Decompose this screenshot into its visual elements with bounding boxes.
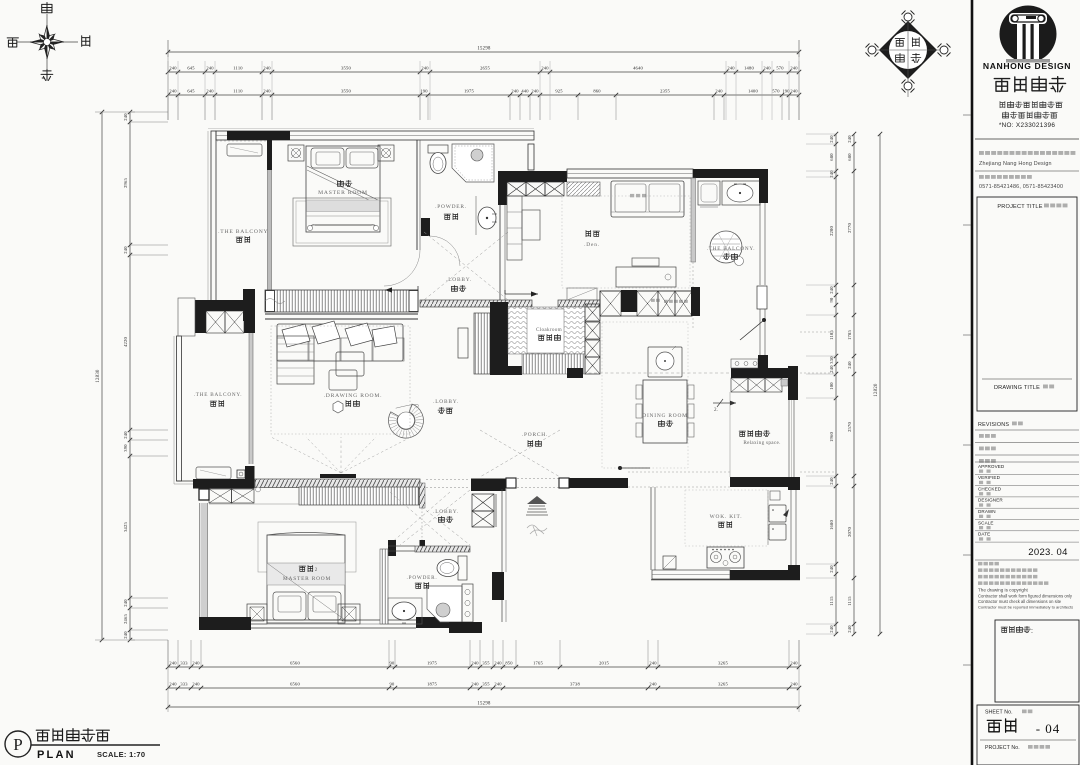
- svg-text:DATE: DATE: [978, 532, 990, 537]
- svg-text:6560: 6560: [290, 661, 300, 666]
- svg-text:240: 240: [263, 66, 271, 71]
- svg-text:3425: 3425: [123, 522, 128, 532]
- svg-text:240: 240: [715, 89, 723, 94]
- svg-text:240: 240: [169, 66, 177, 71]
- svg-text:.THE BALCONY.: .THE BALCONY.: [707, 246, 756, 252]
- svg-text:240: 240: [727, 66, 735, 71]
- svg-text:.THE BALCONY.: .THE BALCONY.: [218, 229, 270, 235]
- svg-text:2070: 2070: [847, 527, 852, 537]
- svg-text:333: 333: [180, 682, 188, 687]
- svg-text:2015: 2015: [599, 661, 609, 666]
- svg-text:240: 240: [471, 661, 479, 666]
- svg-text:12820: 12820: [874, 383, 879, 397]
- svg-text:SHEET No.: SHEET No.: [985, 710, 1013, 716]
- svg-text:240: 240: [829, 477, 834, 485]
- svg-text:WOK. KIT.: WOK. KIT.: [710, 514, 743, 520]
- svg-text:1105: 1105: [829, 330, 834, 340]
- svg-text:The drawing is copyright: The drawing is copyright: [978, 588, 1029, 593]
- svg-text:- 04: - 04: [1036, 721, 1061, 736]
- svg-text:1785: 1785: [847, 330, 852, 340]
- svg-text:15298: 15298: [477, 702, 491, 707]
- svg-text:240: 240: [847, 135, 852, 143]
- svg-text:2965: 2965: [123, 178, 128, 188]
- svg-text:Contractor must be reported im: Contractor must be reported immediately …: [978, 605, 1073, 610]
- svg-text:190: 190: [420, 89, 428, 94]
- svg-text:240: 240: [169, 682, 177, 687]
- svg-text:REVISIONS: REVISIONS: [978, 422, 1009, 428]
- svg-text:VERIFIED: VERIFIED: [978, 475, 1001, 480]
- svg-text:PROJECT No.: PROJECT No.: [985, 745, 1020, 751]
- svg-text:860: 860: [593, 89, 601, 94]
- svg-text:240: 240: [829, 135, 834, 143]
- svg-text:0571-85421486, 0571-85423400: 0571-85421486, 0571-85423400: [979, 184, 1063, 190]
- svg-text:Relaxing space.: Relaxing space.: [743, 440, 780, 446]
- svg-text:CHECKED: CHECKED: [978, 486, 1002, 491]
- svg-text:Cloakroom: Cloakroom: [536, 327, 562, 333]
- svg-text:2655: 2655: [480, 66, 490, 71]
- svg-text:240: 240: [206, 66, 214, 71]
- svg-text:MASTER ROOM: MASTER ROOM: [283, 576, 331, 582]
- svg-text:1400: 1400: [748, 89, 758, 94]
- svg-text:570: 570: [776, 66, 784, 71]
- svg-text:DRAWING TITLE: DRAWING TITLE: [994, 385, 1040, 391]
- svg-text:240: 240: [531, 89, 539, 94]
- svg-text:P: P: [13, 735, 22, 754]
- svg-text:240: 240: [829, 565, 834, 573]
- svg-text:240: 240: [847, 361, 852, 369]
- svg-text:.LOBBY.: .LOBBY.: [433, 509, 459, 515]
- svg-text:1110: 1110: [233, 89, 243, 94]
- svg-text:1960: 1960: [829, 432, 834, 442]
- svg-text:90: 90: [390, 661, 395, 666]
- svg-text:1480: 1480: [744, 66, 754, 71]
- svg-text:3265: 3265: [718, 682, 728, 687]
- svg-text:333: 333: [180, 661, 188, 666]
- svg-text:240: 240: [790, 66, 798, 71]
- svg-text:4220: 4220: [123, 337, 128, 347]
- svg-text:240: 240: [123, 113, 128, 121]
- svg-text:3550: 3550: [341, 89, 351, 94]
- svg-text:440: 440: [521, 89, 529, 94]
- svg-text:DRAWN: DRAWN: [978, 509, 996, 514]
- svg-text:Zhejiang Nang Hong Design: Zhejiang Nang Hong Design: [979, 161, 1052, 167]
- svg-text:Contractor must check all dime: Contractor must check all dimensions on …: [978, 599, 1062, 604]
- svg-text:240: 240: [511, 89, 519, 94]
- svg-text:.LOBBY.: .LOBBY.: [433, 399, 459, 405]
- svg-text:MASTER ROOM: MASTER ROOM: [318, 190, 368, 196]
- svg-text:PLAN: PLAN: [37, 749, 76, 761]
- svg-text:2355: 2355: [660, 89, 670, 94]
- svg-text:240: 240: [829, 286, 834, 294]
- svg-text:*NO: X233021396: *NO: X233021396: [999, 122, 1056, 129]
- svg-text:.DRAWING ROOM.: .DRAWING ROOM.: [324, 393, 383, 399]
- svg-text:240: 240: [421, 66, 429, 71]
- svg-text:240: 240: [790, 682, 798, 687]
- svg-text:.Den.: .Den.: [584, 242, 600, 248]
- svg-text:4640: 4640: [633, 66, 643, 71]
- svg-text:1115: 1115: [829, 596, 834, 606]
- svg-text:DINING ROOM: DINING ROOM: [642, 413, 687, 419]
- svg-text:2023. 04: 2023. 04: [1028, 547, 1067, 558]
- svg-text:680: 680: [829, 153, 834, 161]
- svg-text:DESIGNER: DESIGNER: [978, 498, 1003, 503]
- svg-text:240: 240: [649, 661, 657, 666]
- svg-text:.PORCH.: .PORCH.: [522, 432, 548, 438]
- svg-text:240: 240: [123, 431, 128, 439]
- svg-text:1680: 1680: [829, 520, 834, 530]
- svg-text:2770: 2770: [847, 223, 852, 233]
- svg-text:1975: 1975: [427, 661, 437, 666]
- svg-text:240: 240: [206, 89, 214, 94]
- svg-text:APPROVED: APPROVED: [978, 464, 1005, 469]
- svg-text:PROJECT TITLE: PROJECT TITLE: [997, 204, 1042, 210]
- svg-text:570: 570: [772, 89, 780, 94]
- svg-text:240: 240: [494, 661, 502, 666]
- svg-text:240: 240: [763, 66, 771, 71]
- svg-text:240: 240: [471, 682, 479, 687]
- svg-text::: :: [1031, 628, 1033, 635]
- svg-text:240: 240: [169, 89, 177, 94]
- svg-text:240: 240: [123, 599, 128, 607]
- svg-text:645: 645: [187, 66, 195, 71]
- svg-text:.THE BALCONY.: .THE BALCONY.: [194, 392, 243, 398]
- svg-text:240: 240: [169, 661, 177, 666]
- svg-text:240: 240: [123, 246, 128, 254]
- svg-text:SCALE: SCALE: [978, 520, 994, 525]
- svg-text:240: 240: [790, 661, 798, 666]
- svg-text:680: 680: [847, 153, 852, 161]
- svg-text:240: 240: [790, 89, 798, 94]
- svg-text:.POWDER.: .POWDER.: [435, 204, 467, 210]
- svg-text:355: 355: [482, 661, 490, 666]
- svg-text:240: 240: [829, 365, 834, 373]
- svg-text:3265: 3265: [718, 661, 728, 666]
- svg-text:SCALE: 1:70: SCALE: 1:70: [97, 750, 145, 759]
- svg-text:2200: 2200: [829, 226, 834, 236]
- svg-text:390: 390: [123, 444, 128, 452]
- svg-text:240: 240: [649, 682, 657, 687]
- svg-text:645: 645: [187, 89, 195, 94]
- svg-text:.POWDER.: .POWDER.: [407, 575, 438, 581]
- svg-text:90: 90: [829, 297, 834, 302]
- svg-text:2.: 2.: [714, 408, 718, 413]
- svg-text:240: 240: [123, 631, 128, 639]
- svg-text:850: 850: [505, 661, 513, 666]
- svg-text:.LOBBY.: .LOBBY.: [446, 277, 472, 283]
- svg-text:100: 100: [829, 382, 834, 390]
- svg-text:2465: 2465: [123, 614, 128, 624]
- svg-text:240: 240: [829, 625, 834, 633]
- svg-text:240: 240: [494, 682, 502, 687]
- svg-text:1875: 1875: [427, 682, 437, 687]
- svg-text:2570: 2570: [847, 422, 852, 432]
- svg-text:90: 90: [390, 682, 395, 687]
- svg-text:Contractor shall work form fig: Contractor shall work form figured dimen…: [978, 594, 1073, 599]
- svg-text:1765: 1765: [533, 661, 543, 666]
- svg-text:3738: 3738: [570, 682, 580, 687]
- svg-text:925: 925: [555, 89, 563, 94]
- svg-text:15298: 15298: [477, 47, 491, 52]
- svg-text:12830: 12830: [96, 369, 101, 383]
- svg-text:240: 240: [192, 682, 200, 687]
- svg-text:1115: 1115: [847, 596, 852, 606]
- svg-text:3550: 3550: [341, 66, 351, 71]
- svg-text:240: 240: [192, 661, 200, 666]
- svg-text:240: 240: [541, 66, 549, 71]
- svg-text:NANHONG DESIGN: NANHONG DESIGN: [983, 61, 1071, 71]
- svg-text:330: 330: [829, 356, 834, 364]
- svg-text:240: 240: [847, 625, 852, 633]
- svg-text:355: 355: [482, 682, 490, 687]
- svg-text:6560: 6560: [290, 682, 300, 687]
- svg-text:1110: 1110: [233, 66, 243, 71]
- svg-text:1975: 1975: [464, 89, 474, 94]
- svg-text:240: 240: [263, 89, 271, 94]
